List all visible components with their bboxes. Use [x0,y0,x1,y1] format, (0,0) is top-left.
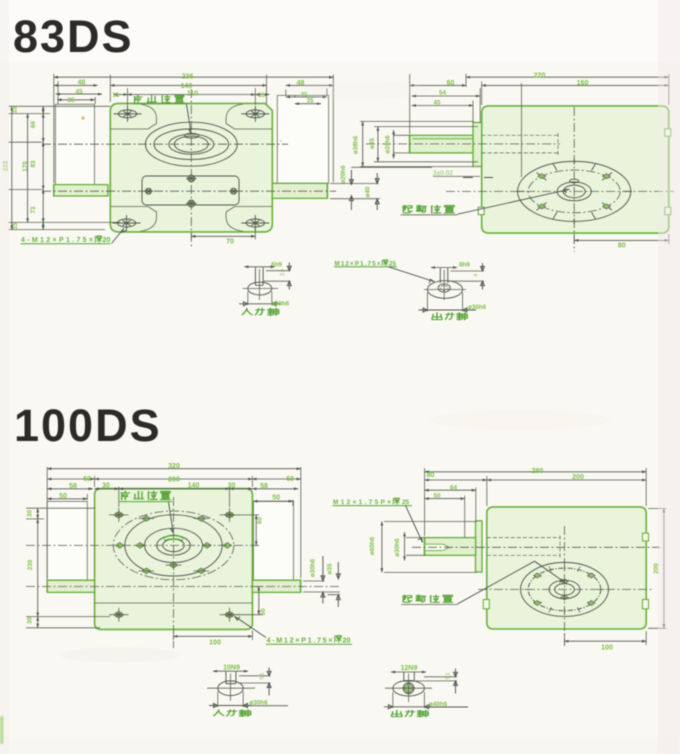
svg-text:280: 280 [532,468,544,475]
svg-text:100: 100 [209,640,221,647]
svg-text:12N9: 12N9 [401,665,418,672]
svg-text:30: 30 [102,483,110,490]
svg-text:6h9: 6h9 [271,262,282,269]
svg-text:30: 30 [228,483,236,490]
svg-text:160: 160 [577,80,589,87]
svg-text:58: 58 [260,483,268,490]
svg-text:70: 70 [226,239,234,246]
svg-text:140: 140 [188,483,200,490]
svg-text:5.1: 5.1 [446,672,452,679]
svg-text:50: 50 [433,492,441,499]
svg-text:ø35: ø35 [369,138,376,149]
svg-text:10N9: 10N9 [223,664,240,671]
svg-text:83DS: 83DS [13,11,134,62]
svg-text:320: 320 [168,463,180,470]
svg-text:60: 60 [260,608,267,616]
svg-text:35: 35 [67,97,75,104]
svg-text:M12×P1.75×: M12×P1.75× [335,260,381,267]
svg-text:73: 73 [30,206,37,214]
svg-text:15: 15 [258,92,266,99]
svg-text:3.5: 3.5 [280,269,286,276]
svg-text:25: 25 [389,260,396,267]
svg-text:45: 45 [75,88,83,95]
svg-text:48: 48 [78,80,86,87]
svg-text:50: 50 [272,495,280,502]
svg-text:220: 220 [534,72,546,79]
svg-text:15: 15 [112,92,120,99]
svg-text:45: 45 [433,99,441,106]
svg-text:15: 15 [12,222,19,230]
svg-text:110: 110 [187,90,198,97]
svg-text:60: 60 [83,476,91,483]
svg-text:ø20h6: ø20h6 [271,301,290,308]
svg-text:3±0.02: 3±0.02 [433,170,453,177]
svg-text:ø20h6: ø20h6 [385,135,392,154]
svg-text:ø30h6: ø30h6 [249,700,268,707]
svg-text:ø38h6: ø38h6 [353,135,360,154]
svg-text:30: 30 [27,510,34,518]
svg-text:ø30h6: ø30h6 [394,538,401,557]
svg-text:5.1: 5.1 [260,672,266,679]
svg-text:200: 200 [572,474,584,481]
svg-text:60: 60 [286,476,294,483]
svg-text:60: 60 [257,517,264,525]
svg-text:80: 80 [427,472,435,479]
svg-text:66: 66 [30,121,37,129]
svg-text:30: 30 [27,617,34,625]
svg-text:50: 50 [59,493,67,500]
svg-text:8h9: 8h9 [459,262,470,269]
svg-text:54: 54 [439,89,447,96]
svg-text:ø30h6: ø30h6 [310,558,317,577]
svg-text:100: 100 [601,644,613,651]
svg-text:ø40h6: ø40h6 [429,701,448,708]
svg-text:170: 170 [22,161,29,172]
svg-text:83: 83 [30,160,37,168]
svg-text:ø40: ø40 [365,186,372,197]
svg-text:64: 64 [450,484,458,491]
svg-text:25: 25 [402,499,410,506]
svg-text:80: 80 [618,242,626,249]
svg-text:35: 35 [306,98,314,105]
svg-text:4: 4 [474,274,480,277]
svg-text:20: 20 [343,635,351,644]
svg-text:230: 230 [27,559,34,570]
svg-text:200: 200 [168,476,180,483]
svg-text:100DS: 100DS [14,400,162,451]
svg-text:15: 15 [12,106,19,114]
svg-text:236: 236 [182,73,194,80]
svg-text:M12×1.75P×: M12×1.75P× [333,499,391,506]
svg-text:58: 58 [69,483,77,490]
svg-text:140: 140 [181,83,193,90]
svg-text:ø20h6: ø20h6 [340,165,347,184]
svg-text:ø60h6: ø60h6 [369,536,376,555]
svg-text:20: 20 [103,237,111,244]
svg-text:60: 60 [447,80,455,87]
svg-text:ø35: ø35 [327,563,334,574]
svg-text:ø30h6: ø30h6 [468,304,487,311]
